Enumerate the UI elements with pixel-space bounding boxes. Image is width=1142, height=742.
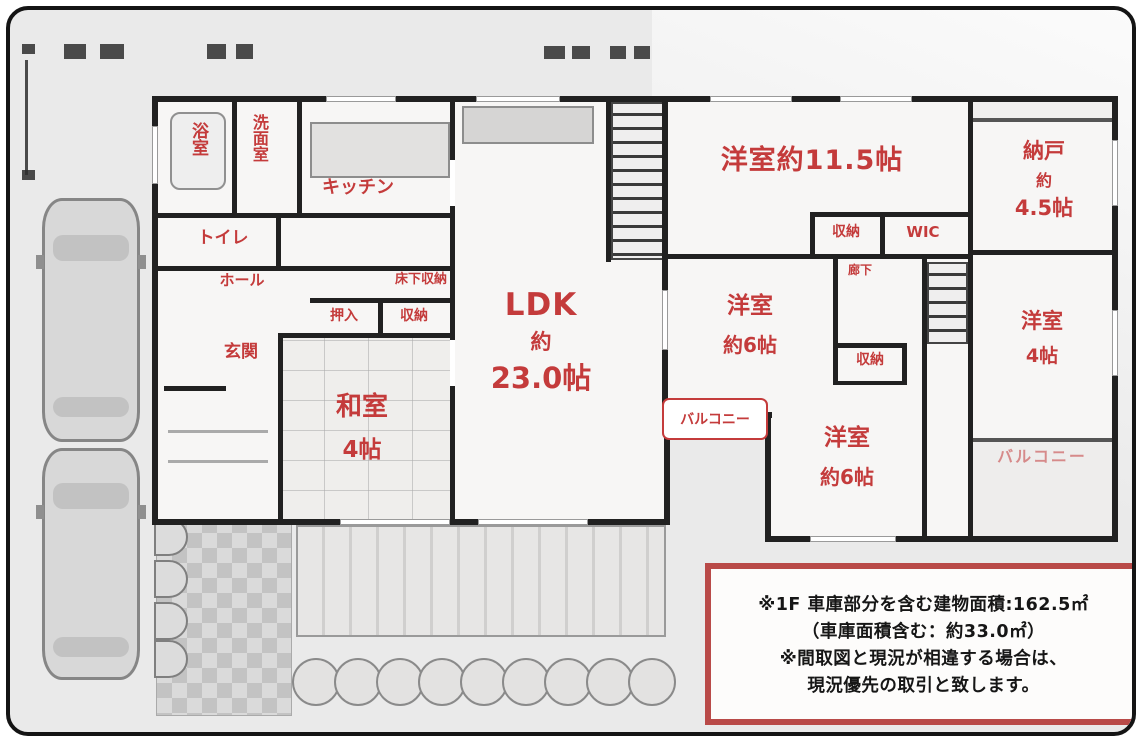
entrance-step — [168, 430, 268, 433]
room-label-washitsu: 和室 4帖 — [322, 393, 402, 464]
balcony2-label: バルコニー — [976, 448, 1108, 466]
car-icon — [42, 448, 140, 680]
balcony-top — [973, 102, 1112, 118]
room-label-washroom: 洗面室 — [250, 114, 268, 162]
room-label-hallway: 廊下 — [838, 264, 882, 277]
room-label-bath: 浴室 — [188, 122, 207, 156]
room-label-west3: 洋室 約6帖 — [804, 426, 890, 488]
balcony-label-tag: バルコニー — [662, 398, 768, 440]
stairs-1f — [611, 102, 664, 260]
room-label-nando: 納戸 約 4.5帖 — [1006, 140, 1082, 221]
room-label-oshiire: 押入 — [316, 309, 372, 325]
plan-frame: 浴室 洗面室 トイレ キッチン ホール 床下収納 押入 収納 玄関 和室 4帖 … — [6, 6, 1136, 736]
room-label-west1: 洋室 約6帖 — [710, 294, 790, 356]
window — [810, 536, 896, 542]
stairs-2f — [927, 262, 968, 344]
window — [1112, 310, 1118, 376]
window — [478, 519, 588, 525]
window — [476, 96, 560, 102]
room-label-closet: 収納 — [818, 225, 874, 241]
door-opening — [450, 160, 455, 206]
note-line: ※間取図と現況が相違する場合は、 — [719, 645, 1128, 670]
disclaimer-note-box: ※1F 車庫部分を含む建物面積:162.5㎡ （車庫面積含む：約33.0㎡） ※… — [705, 563, 1136, 725]
room-label-hall: ホール — [214, 272, 270, 289]
floor-plan-page: 浴室 洗面室 トイレ キッチン ホール 床下収納 押入 収納 玄関 和室 4帖 … — [0, 0, 1142, 742]
note-line: ※1F 車庫部分を含む建物面積:162.5㎡ — [719, 591, 1128, 616]
window — [840, 96, 912, 102]
room-label-kitchen: キッチン — [315, 178, 401, 198]
note-line: 現況優先の取引と致します。 — [719, 672, 1128, 697]
kitchen-island — [310, 122, 450, 178]
entrance-step — [168, 460, 268, 463]
room-label-closet2: 収納 — [842, 353, 898, 369]
wood-deck — [296, 525, 666, 637]
window — [1112, 140, 1118, 206]
window — [710, 96, 792, 102]
note-line: （車庫面積含む：約33.0㎡） — [719, 618, 1128, 643]
window — [662, 290, 668, 350]
room-label-storage: 収納 — [386, 309, 442, 325]
room-label-master-bedroom: 洋室約11.5帖 — [696, 146, 928, 176]
room-label-under-floor-storage: 床下収納 — [390, 273, 452, 288]
room-label-wic: WIC — [890, 224, 956, 241]
room-label-toilet: トイレ — [188, 229, 258, 248]
room-label-ldk: LDK 約 23.0帖 — [478, 288, 604, 395]
window — [326, 96, 396, 102]
room-label-entrance: 玄関 — [210, 343, 272, 362]
car-icon — [42, 198, 140, 442]
kitchen-counter — [462, 106, 594, 144]
window — [340, 519, 450, 525]
room-label-west2: 洋室 4帖 — [1006, 310, 1078, 367]
door-opening — [450, 340, 455, 386]
shrub-row — [292, 656, 664, 708]
window — [152, 126, 158, 184]
